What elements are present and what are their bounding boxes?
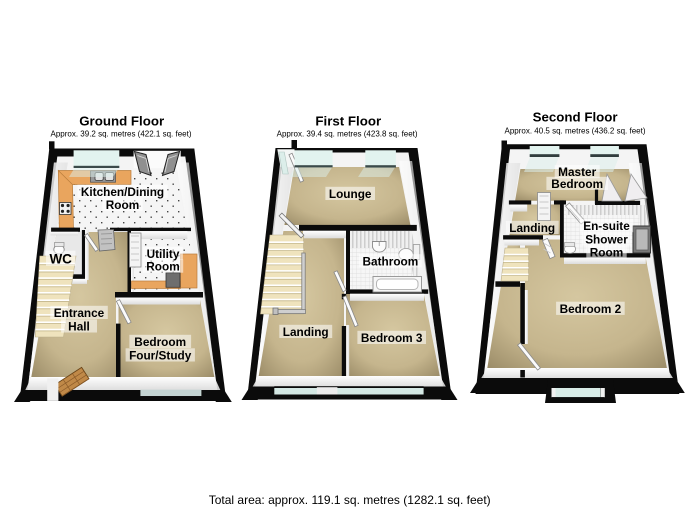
svg-text:Second Floor: Second Floor [533, 109, 618, 124]
svg-text:Room: Room [106, 198, 139, 212]
svg-text:Bedroom: Bedroom [134, 335, 186, 349]
svg-text:Four/Study: Four/Study [129, 349, 192, 363]
svg-text:Lounge: Lounge [329, 187, 372, 201]
svg-text:Shower: Shower [585, 232, 628, 246]
svg-text:Bedroom 3: Bedroom 3 [361, 331, 423, 345]
svg-text:Entrance: Entrance [54, 306, 105, 320]
svg-text:Bedroom 2: Bedroom 2 [560, 302, 622, 316]
svg-text:Approx. 40.5 sq. metres (436.2: Approx. 40.5 sq. metres (436.2 sq. feet) [505, 126, 646, 135]
svg-text:Ground Floor: Ground Floor [79, 113, 164, 128]
svg-text:Room: Room [590, 246, 623, 260]
svg-text:Bedroom: Bedroom [551, 177, 603, 191]
svg-text:Hall: Hall [68, 320, 90, 334]
svg-text:WC: WC [49, 252, 72, 267]
svg-text:Total area: approx. 119.1 sq.: Total area: approx. 119.1 sq. metres (12… [209, 493, 491, 507]
svg-text:First Floor: First Floor [315, 113, 381, 128]
svg-text:Approx. 39.4 sq. metres (423.8: Approx. 39.4 sq. metres (423.8 sq. feet) [277, 129, 418, 138]
svg-text:Kitchen/Dining: Kitchen/Dining [81, 185, 164, 199]
svg-text:Landing: Landing [509, 221, 555, 235]
svg-text:Bathroom: Bathroom [363, 254, 419, 268]
svg-text:Room: Room [146, 260, 179, 274]
svg-text:Approx. 39.2 sq. metres (422.1: Approx. 39.2 sq. metres (422.1 sq. feet) [51, 130, 192, 139]
svg-text:En-suite: En-suite [583, 219, 630, 233]
svg-text:Landing: Landing [283, 325, 329, 339]
